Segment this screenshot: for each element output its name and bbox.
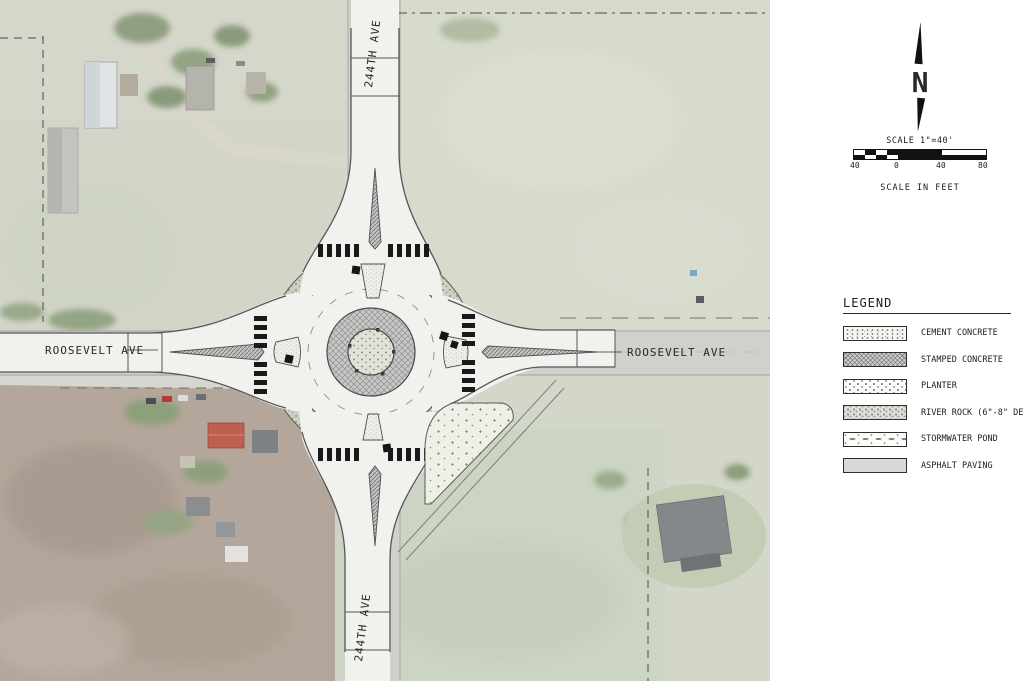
site-plan-map: ROOSEVELT AVE ROOSEVELT AVE 244TH AVE 24…	[0, 0, 770, 681]
legend-swatch	[843, 432, 907, 447]
site-plan-svg: ROOSEVELT AVE ROOSEVELT AVE 244TH AVE 24…	[0, 0, 770, 681]
north-arrow: N	[845, 22, 995, 138]
north-arrow-svg: N	[885, 22, 955, 134]
legend-label: CEMENT CONCRETE	[921, 328, 998, 338]
legend-swatch	[843, 352, 907, 367]
scale-tick: 40	[850, 161, 860, 170]
legend-label: STAMPED CONCRETE	[921, 355, 1003, 365]
scale-tick: 80	[978, 161, 988, 170]
scale-bar-right	[942, 150, 986, 159]
legend-item-planter: PLANTER	[843, 379, 1023, 394]
legend-swatch	[843, 458, 907, 473]
label-roosevelt-west: ROOSEVELT AVE	[45, 344, 144, 357]
legend-label: PLANTER	[921, 381, 957, 391]
scale-ticks: 40 0 40 80	[850, 161, 990, 173]
scale-title: SCALE 1"=40'	[845, 136, 995, 146]
legend-item-river-rock: RIVER ROCK (6"-8" DEPTH)	[843, 405, 1023, 420]
central-planter	[348, 329, 394, 375]
label-roosevelt-east: ROOSEVELT AVE	[627, 346, 726, 359]
legend-item-asphalt-paving: ASPHALT PAVING	[843, 458, 1023, 473]
legend-label: STORMWATER POND	[921, 434, 998, 444]
legend-item-stormwater-pond: STORMWATER POND	[843, 432, 1023, 447]
legend-swatch	[843, 405, 907, 420]
scale-block: SCALE 1"=40' 40 0 40 80 SCALE IN FEET	[845, 136, 995, 193]
north-letter: N	[912, 66, 929, 99]
scale-bar	[853, 149, 987, 160]
legend: LEGEND CEMENT CONCRETE STAMPED CONCRETE …	[843, 296, 1023, 473]
legend-label: RIVER ROCK (6"-8" DEPTH)	[921, 408, 1024, 418]
legend-swatch	[843, 326, 907, 341]
scale-caption: SCALE IN FEET	[845, 183, 995, 193]
se-house	[622, 484, 766, 588]
scale-bar-left	[854, 150, 898, 159]
legend-item-cement-concrete: CEMENT CONCRETE	[843, 326, 1023, 341]
scale-tick: 40	[936, 161, 946, 170]
legend-swatch	[843, 379, 907, 394]
scale-bar-mid	[898, 150, 942, 159]
legend-title: LEGEND	[843, 296, 1011, 314]
scale-tick: 0	[894, 161, 899, 170]
plan-sheet: ROOSEVELT AVE ROOSEVELT AVE 244TH AVE 24…	[0, 0, 1024, 681]
legend-label: ASPHALT PAVING	[921, 461, 993, 471]
legend-item-stamped-concrete: STAMPED CONCRETE	[843, 352, 1023, 367]
